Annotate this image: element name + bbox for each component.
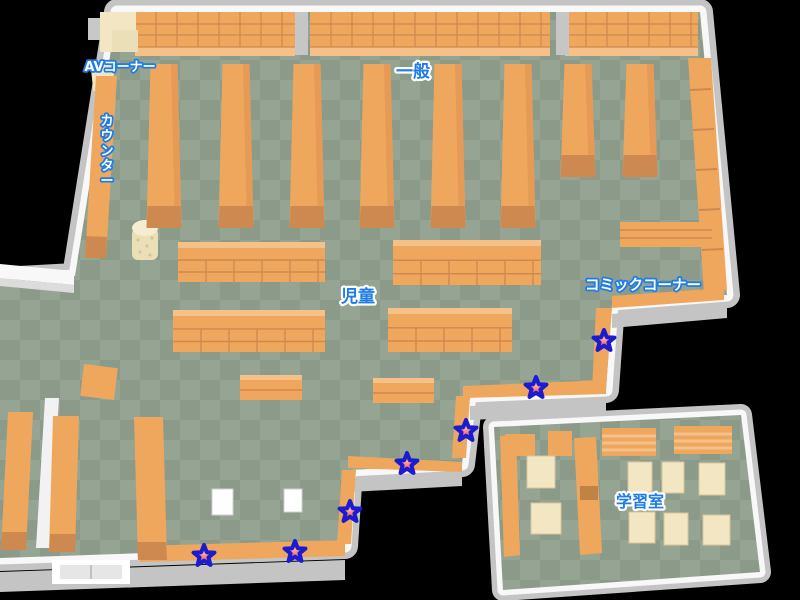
study-table: [699, 463, 725, 495]
children-shelf: [388, 308, 512, 352]
floor-map-canvas: AVコーナー カウンター 一般 児童 コミックコーナー 学習室: [0, 0, 800, 600]
children-shelf: [393, 240, 541, 285]
children-shelf-top: [178, 242, 325, 248]
annex-shelf: [548, 431, 572, 456]
children-shelf-top: [393, 240, 541, 246]
library-floor-map: AVコーナー カウンター 一般 児童 コミックコーナー 学習室: [0, 0, 800, 600]
entrance-door: [52, 560, 130, 584]
bookshelf: [620, 222, 712, 247]
children-shelf-top: [388, 308, 512, 314]
study-table: [664, 513, 688, 545]
bench-top: [373, 378, 434, 383]
wall-shelf-front: [310, 47, 550, 56]
children-shelf: [173, 310, 325, 352]
shelf-end: [623, 155, 658, 177]
wall-shelf-front: [565, 47, 698, 56]
label-children: 児童: [340, 286, 375, 307]
pillar: [295, 12, 308, 55]
label-counter: カウンター: [100, 114, 113, 189]
shelf-end: [501, 206, 536, 228]
shelf-end: [147, 206, 182, 228]
annex-shelf: [505, 434, 535, 456]
kiosk: [284, 489, 302, 512]
shelf-end: [1, 532, 27, 550]
counter-end: [85, 236, 107, 258]
bench-top: [240, 375, 302, 380]
label-study-room: 学習室: [616, 492, 664, 511]
study-table: [703, 515, 730, 545]
shelf-end: [431, 206, 466, 228]
shelf-end: [360, 206, 395, 228]
label-comic-corner: コミックコーナー: [585, 277, 701, 294]
av-cabinet: [112, 30, 138, 52]
shelf-end: [137, 542, 167, 560]
wall-shelf-front: [135, 47, 295, 56]
bookshelf: [134, 417, 167, 560]
children-shelf-top: [173, 310, 325, 316]
label-av-corner: AVコーナー: [84, 60, 155, 75]
study-table: [629, 512, 655, 543]
floor-mat: [80, 364, 118, 400]
annex-partition-gap: [580, 486, 598, 500]
comic-corner-shelf: [620, 222, 712, 247]
bookshelf: [49, 416, 79, 552]
shelf-end: [290, 206, 325, 228]
shelf-end: [49, 534, 76, 552]
label-general: 一般: [396, 61, 430, 82]
wall-shelf-blocks: [135, 12, 698, 56]
shelf-end: [219, 206, 254, 228]
kiosk: [212, 489, 233, 515]
shelf-end: [561, 155, 596, 177]
study-table: [628, 462, 652, 492]
pillar: [556, 12, 569, 55]
study-table: [531, 503, 561, 534]
study-table: [662, 462, 684, 493]
study-table: [527, 456, 555, 488]
